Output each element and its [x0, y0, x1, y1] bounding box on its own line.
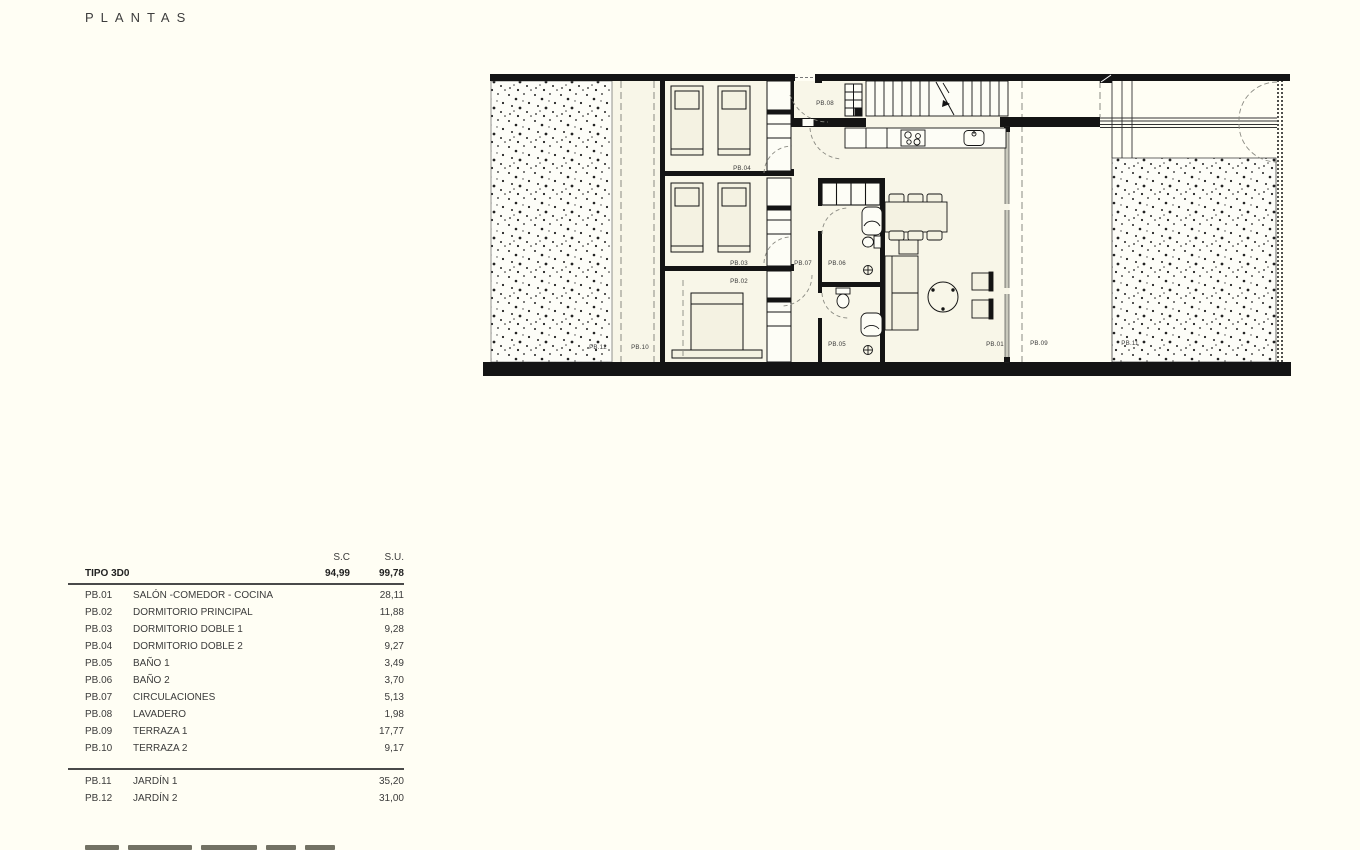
- room-name: TERRAZA 1: [133, 723, 298, 740]
- table-row: PB.09 TERRAZA 1 17,77: [68, 723, 404, 740]
- room-su-value: 5,13: [350, 689, 404, 706]
- table-row: PB.12 JARDÍN 2 31,00: [68, 790, 404, 807]
- table-row: PB.11 JARDÍN 1 35,20: [68, 773, 404, 790]
- label-pb05: PB.05: [828, 341, 846, 348]
- table-row: PB.10 TERRAZA 2 9,17: [68, 740, 404, 757]
- column-header-su: S.U.: [350, 551, 404, 565]
- room-su-value: 3,49: [350, 655, 404, 672]
- table-header: S.C S.U.: [68, 551, 404, 565]
- table-row: PB.08 LAVADERO 1,98: [68, 706, 404, 723]
- table-row: PB.01 SALÓN -COMEDOR - COCINA 28,11: [68, 587, 404, 604]
- cropped-bottom-content: [85, 845, 335, 850]
- label-pb08: PB.08: [816, 100, 834, 107]
- room-name: DORMITORIO DOBLE 1: [133, 621, 298, 638]
- room-name: JARDÍN 2: [133, 790, 298, 807]
- entry-walkway: [1100, 81, 1277, 158]
- staircase: [866, 81, 1008, 116]
- room-su-value: 17,77: [350, 723, 404, 740]
- floor-plan: PB.08 PB.04 PB.03 PB.02 PB.07 PB.06 PB.0…: [481, 66, 1293, 378]
- type-sc-value: 94,99: [298, 565, 350, 582]
- label-pb12: PB.12: [589, 344, 607, 351]
- hall-closet: [822, 183, 880, 205]
- page-title: PLANTAS: [85, 10, 192, 25]
- room-code: PB.11: [68, 773, 133, 790]
- garden-jardin-2: [491, 81, 612, 362]
- dining-set: [885, 194, 947, 240]
- entrance-door: [795, 74, 815, 81]
- room-su-value: 1,98: [350, 706, 404, 723]
- label-pb10: PB.10: [631, 344, 649, 351]
- column-header-sc: S.C: [298, 551, 350, 565]
- column: [1100, 74, 1112, 83]
- room-code: PB.05: [68, 655, 133, 672]
- table-row: PB.07 CIRCULACIONES 5,13: [68, 689, 404, 706]
- room-name: BAÑO 1: [133, 655, 298, 672]
- table-row: PB.06 BAÑO 2 3,70: [68, 672, 404, 689]
- room-su-value: 28,11: [350, 587, 404, 604]
- label-pb06: PB.06: [828, 260, 846, 267]
- room-code: PB.10: [68, 740, 133, 757]
- table-row: PB.05 BAÑO 1 3,49: [68, 655, 404, 672]
- room-su-value: 9,17: [350, 740, 404, 757]
- room-code: PB.03: [68, 621, 133, 638]
- label-pb09: PB.09: [1030, 340, 1048, 347]
- room-code: PB.08: [68, 706, 133, 723]
- wardrobes: [767, 81, 791, 362]
- label-pb01: PB.01: [986, 341, 1004, 348]
- outdoor-rows: PB.11 JARDÍN 1 35,20 PB.12 JARDÍN 2 31,0…: [68, 768, 404, 807]
- room-name: TERRAZA 2: [133, 740, 298, 757]
- room-name: JARDÍN 1: [133, 773, 298, 790]
- room-su-value: 35,20: [350, 773, 404, 790]
- type-label: TIPO 3D0: [68, 565, 235, 582]
- room-su-value: 31,00: [350, 790, 404, 807]
- room-code: PB.06: [68, 672, 133, 689]
- room-code: PB.12: [68, 790, 133, 807]
- window-glazing: [1004, 127, 1010, 362]
- room-su-value: 9,27: [350, 638, 404, 655]
- boundary-fence: [1278, 80, 1282, 363]
- laundry-shelving: [845, 84, 862, 116]
- room-code: PB.09: [68, 723, 133, 740]
- room-code: PB.07: [68, 689, 133, 706]
- room-code: PB.04: [68, 638, 133, 655]
- room-su-value: 3,70: [350, 672, 404, 689]
- table-row: PB.02 DORMITORIO PRINCIPAL 11,88: [68, 604, 404, 621]
- table-type-row: TIPO 3D0 94,99 99,78: [68, 565, 404, 585]
- washing-machine: [802, 119, 814, 127]
- room-name: BAÑO 2: [133, 672, 298, 689]
- room-name: DORMITORIO PRINCIPAL: [133, 604, 298, 621]
- indoor-rows: PB.01 SALÓN -COMEDOR - COCINA 28,11 PB.0…: [68, 587, 404, 757]
- room-su-value: 9,28: [350, 621, 404, 638]
- room-name: CIRCULACIONES: [133, 689, 298, 706]
- label-pb07: PB.07: [794, 260, 812, 267]
- garden-jardin-1: [1112, 158, 1276, 362]
- room-name: SALÓN -COMEDOR - COCINA: [133, 587, 298, 604]
- label-pb04: PB.04: [733, 165, 751, 172]
- type-su-value: 99,78: [350, 565, 404, 582]
- label-pb02: PB.02: [730, 278, 748, 285]
- entry-gate-swings: [1239, 82, 1277, 162]
- label-pb11: PB.11: [1121, 340, 1139, 347]
- table-row: PB.03 DORMITORIO DOBLE 1 9,28: [68, 621, 404, 638]
- room-code: PB.01: [68, 587, 133, 604]
- room-su-value: 11,88: [350, 604, 404, 621]
- room-name: LAVADERO: [133, 706, 298, 723]
- plan-sheet: PLANTAS: [0, 0, 1360, 850]
- room-code: PB.02: [68, 604, 133, 621]
- room-name: DORMITORIO DOBLE 2: [133, 638, 298, 655]
- label-pb03: PB.03: [730, 260, 748, 267]
- table-row: PB.04 DORMITORIO DOBLE 2 9,27: [68, 638, 404, 655]
- area-table: S.C S.U. TIPO 3D0 94,99 99,78 PB.01 SALÓ…: [68, 551, 404, 807]
